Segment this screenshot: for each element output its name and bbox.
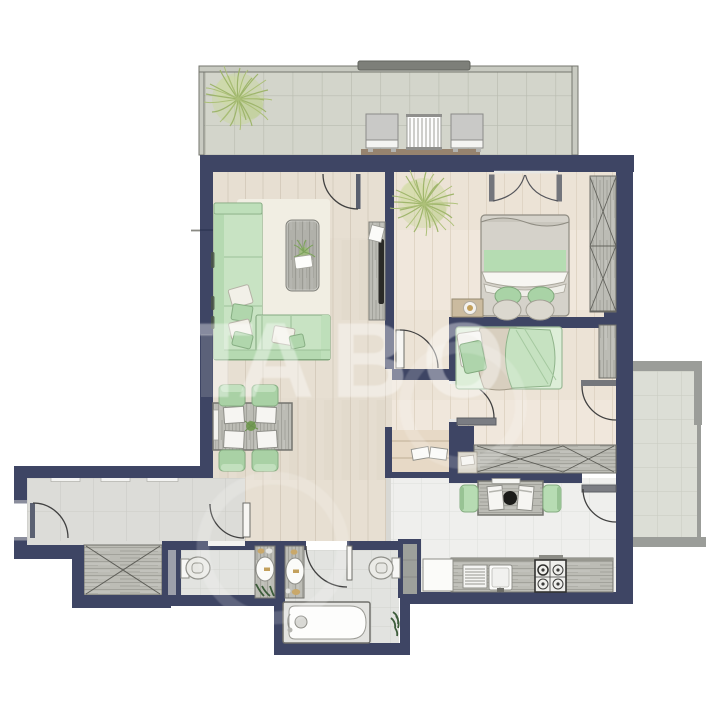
svg-text:ITABO: ITABO — [169, 300, 505, 420]
